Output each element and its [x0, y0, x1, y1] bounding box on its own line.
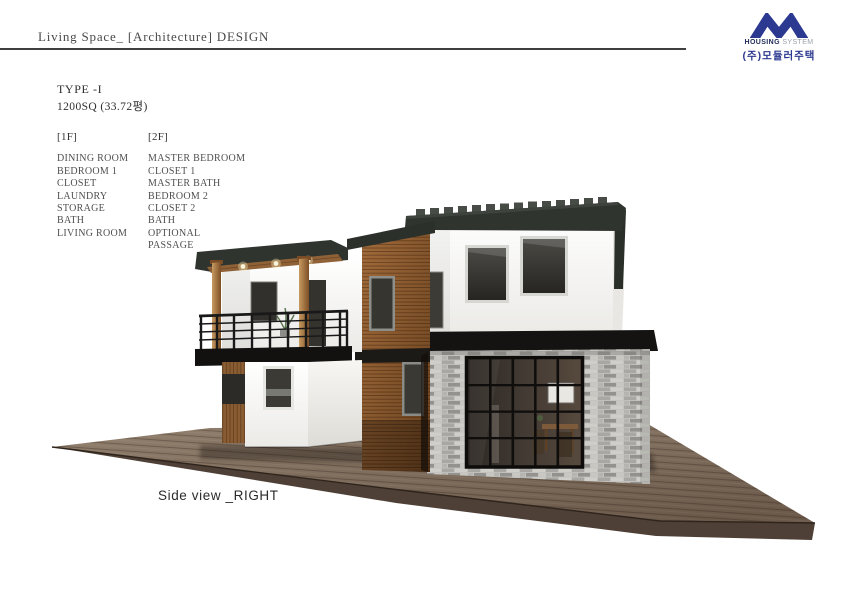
interior-table — [542, 424, 578, 429]
first-floor-window — [263, 366, 294, 410]
glass-door — [467, 358, 583, 468]
wood-section-window — [369, 276, 395, 331]
first-floor-side-wall — [308, 360, 362, 447]
narrow-window — [428, 272, 443, 328]
interior-chair — [558, 432, 572, 457]
brick-wall — [427, 349, 650, 484]
first-floor-box — [222, 360, 362, 447]
second-floor-window — [520, 236, 568, 296]
design-board-page: Living Space_ [Architecture] DESIGN HOUS… — [0, 0, 850, 600]
first-floor-fascia — [403, 330, 658, 352]
balcony — [195, 240, 362, 366]
corner-wood-strip — [222, 362, 245, 443]
wood-section-window — [402, 362, 424, 416]
view-caption: Side view _RIGHT — [158, 488, 279, 503]
corner-window — [222, 374, 245, 404]
second-floor-window — [465, 245, 509, 303]
right-wing — [403, 197, 658, 352]
house-rendering — [0, 0, 850, 600]
